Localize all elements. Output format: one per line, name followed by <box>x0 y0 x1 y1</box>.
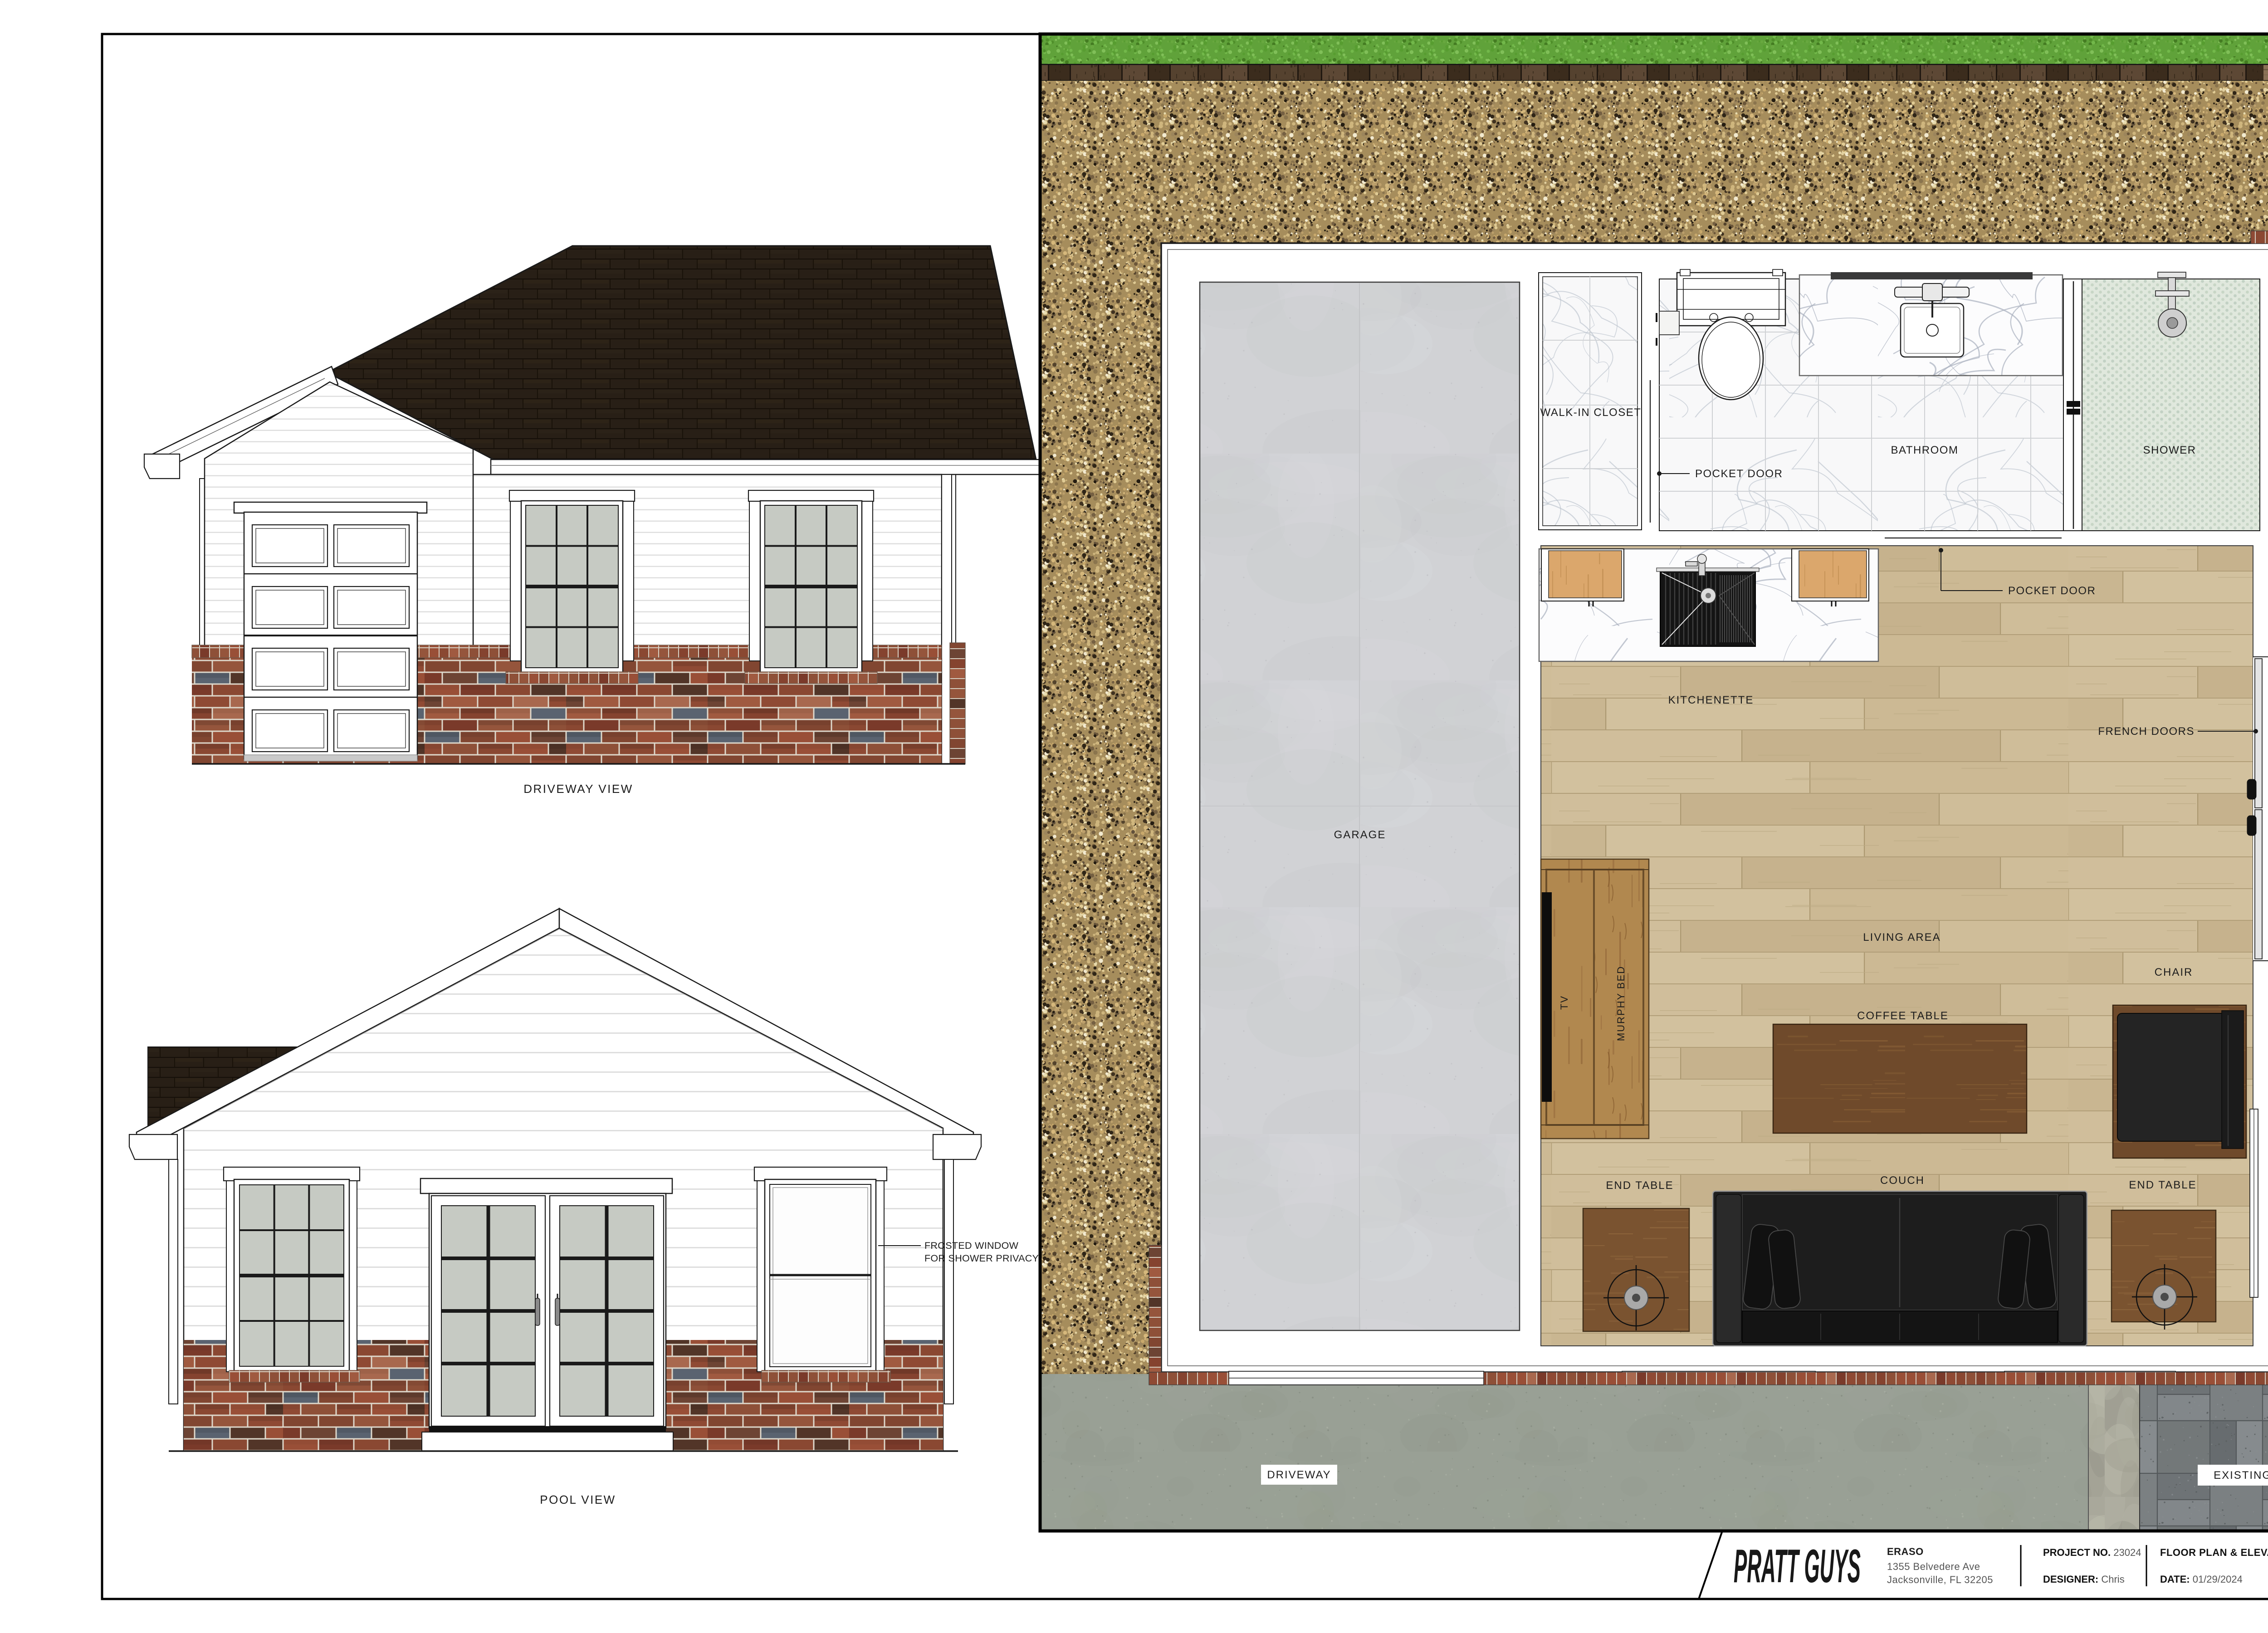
svg-text:ERASO: ERASO <box>1887 1546 1924 1557</box>
svg-text:FLOOR PLAN & ELEVATIONS - 2: FLOOR PLAN & ELEVATIONS - 2 <box>2160 1547 2268 1558</box>
svg-text:WALK-IN CLOSET: WALK-IN CLOSET <box>1540 406 1642 419</box>
svg-text:EXISTING POOL DECK: EXISTING POOL DECK <box>2214 1469 2268 1481</box>
svg-text:FRENCH DOORS: FRENCH DOORS <box>2098 725 2195 738</box>
svg-text:Jacksonville, FL 32205: Jacksonville, FL 32205 <box>1887 1574 1993 1585</box>
svg-text:DESIGNER: Chris: DESIGNER: Chris <box>2043 1574 2125 1585</box>
svg-text:SHOWER: SHOWER <box>2143 444 2196 456</box>
svg-text:KITCHENETTE: KITCHENETTE <box>1668 694 1754 706</box>
svg-text:DATE: 01/29/2024: DATE: 01/29/2024 <box>2160 1574 2243 1585</box>
svg-text:COUCH: COUCH <box>1880 1174 1925 1187</box>
svg-text:MURPHY BED: MURPHY BED <box>1615 966 1627 1041</box>
svg-text:END TABLE: END TABLE <box>2129 1179 2196 1191</box>
svg-text:LIVING AREA: LIVING AREA <box>1863 931 1941 944</box>
svg-text:COFFEE TABLE: COFFEE TABLE <box>1857 1010 1949 1022</box>
svg-text:FROSTED WINDOW: FROSTED WINDOW <box>924 1240 1019 1251</box>
svg-text:FOR SHOWER PRIVACY: FOR SHOWER PRIVACY <box>924 1253 1039 1264</box>
svg-text:POCKET DOOR: POCKET DOOR <box>2008 585 2096 597</box>
svg-text:GARAGE: GARAGE <box>1334 829 1386 841</box>
svg-text:PRATT GUYS: PRATT GUYS <box>1734 1540 1861 1593</box>
svg-text:DRIVEWAY: DRIVEWAY <box>1267 1469 1331 1481</box>
svg-text:DRIVEWAY VIEW: DRIVEWAY VIEW <box>523 782 633 796</box>
svg-text:PROJECT NO. 23024: PROJECT NO. 23024 <box>2043 1547 2141 1558</box>
svg-text:POCKET DOOR: POCKET DOOR <box>1695 468 1783 480</box>
svg-text:BATHROOM: BATHROOM <box>1891 444 1959 456</box>
svg-text:POOL VIEW: POOL VIEW <box>540 1493 616 1506</box>
svg-text:TV: TV <box>1559 995 1570 1010</box>
svg-text:1355 Belvedere Ave: 1355 Belvedere Ave <box>1887 1561 1980 1572</box>
svg-text:END TABLE: END TABLE <box>1606 1179 1673 1192</box>
svg-text:CHAIR: CHAIR <box>2155 966 2193 978</box>
